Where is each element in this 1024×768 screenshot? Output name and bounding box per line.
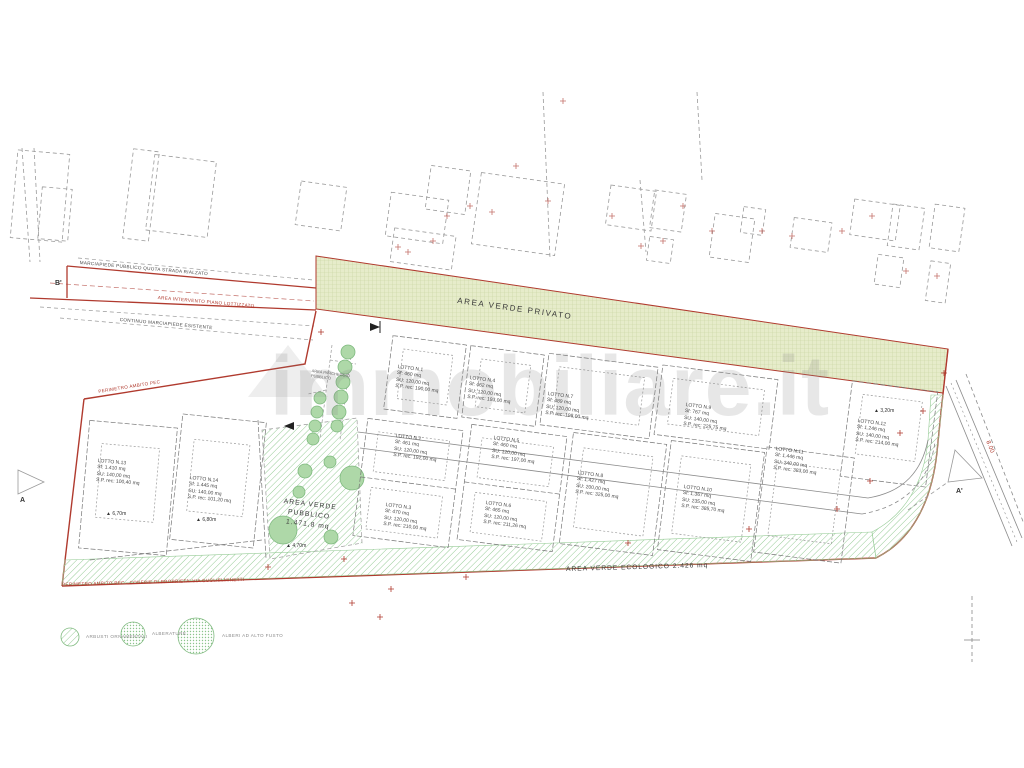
elevation-value: 6,70m [112,511,126,517]
survey-top [395,98,940,279]
elevation-marker: ▲ 3,20m [874,408,894,414]
legend-item-shrubs: ARBUSTI ORNAMENTALI [86,634,148,639]
lot-label-n5: LOTTO N.5Sf: 460 mqSU: 120,00 mqS.P. rec… [491,435,537,465]
legend-item-tall-trees: ALBERI AD ALTO FUSTO [222,633,283,638]
lot-label-n14: LOTTO N.14Sf: 1.445 mqSU: 140,00 mqS.P. … [187,475,233,504]
lot-label-n12: LOTTO N.12Sf: 1.246 mqSU: 140,00 mqS.P. … [855,418,901,448]
section-marker-b-prime: B' [55,280,62,287]
lot-label-n10: LOTTO N.10Sf: 1.367 mqSU: 235,00 mqS.P. … [681,484,727,514]
site-plan-canvas: immobiliare.it MARCIAPIEDE PUBBLICO QUOT… [0,0,1024,768]
lot-label-n3: LOTTO N.3Sf: 470 mqSU: 120,00 mqS.P. rec… [383,502,429,532]
elevation-triangle-icon: ▲ [196,517,201,523]
lot-label-n8: LOTTO N.8Sf: 1.427 mqSU: 200,00 mqS.P. r… [575,470,621,500]
section-marker-a-prime: A' [956,488,963,495]
lot-label-n2: LOTTO N.2Sf: 461 mqSU: 120,00 mqS.P. rec… [393,433,439,463]
lot-label-n1: LOTTO N.1Sf: 460 mqSU: 120,00 mqS.P. rec… [395,364,441,394]
lot-label-n9: LOTTO N.9Sf: 767 mqSU: 140,00 mqS.P. rec… [683,402,729,432]
elevation-marker: ▲ 4,70m [286,543,306,549]
lot-label-n11: LOTTO N.11Sf: 1.446 mqSU: 240,00 mqS.P. … [773,446,819,476]
elevation-marker: ▲ 6,70m [106,511,126,517]
lot-label-n13: LOTTO N.13Sf: 1.410 mqSU: 140,00 mqS.P. … [96,458,142,487]
elevation-value: 4,70m [292,543,306,549]
elevation-value: 6,80m [202,517,216,523]
section-marker-a: A [20,497,25,504]
lot-label-n4: LOTTO N.4Sf: 462 mqSU: 120,00 mqS.P. rec… [467,375,513,405]
elevation-triangle-icon: ▲ [286,543,291,549]
elevation-value: 3,20m [880,408,894,414]
legend-item-trees: ALBERATURE [152,631,186,636]
elevation-marker: ▲ 6,80m [196,517,216,523]
lot-label-n7: LOTTO N.7Sf: 489 mqSU: 120,00 mqS.P. rec… [545,391,591,421]
elevation-triangle-icon: ▲ [874,408,879,414]
elevation-triangle-icon: ▲ [106,511,111,517]
lot-label-n6: LOTTO N.6Sf: 465 mqSU: 120,00 mqS.P. rec… [483,500,529,530]
